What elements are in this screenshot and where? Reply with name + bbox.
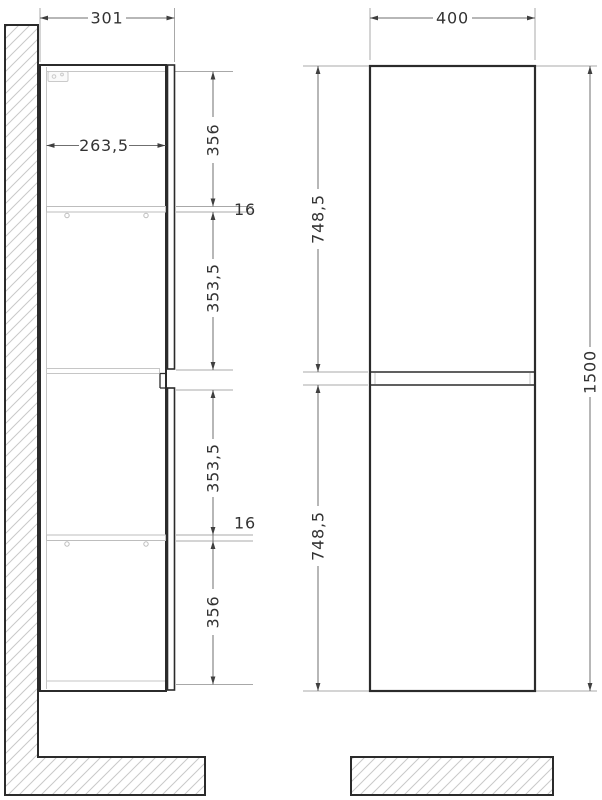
technical-drawing-page: 301 263,5 356 16 353,5 — [0, 0, 602, 800]
dim-shelf-lower-label: 16 — [234, 514, 256, 533]
dim-top-section-label: 356 — [204, 124, 223, 157]
dim-front-width: 400 — [370, 9, 535, 28]
dim-total-height-label: 1500 — [581, 350, 600, 394]
dim-mid-lower-label: 353,5 — [204, 443, 223, 493]
dim-side-depth: 301 — [40, 9, 175, 28]
dim-door-heights: 748,5 748,5 — [309, 66, 328, 691]
hinge-detail — [48, 72, 68, 82]
dim-lower-door-label: 748,5 — [309, 511, 328, 561]
cabinet-side-carcass — [40, 65, 166, 691]
dim-bottom-section-label: 356 — [204, 596, 223, 629]
dim-mid-upper-label: 353,5 — [204, 263, 223, 313]
front-view: 400 748,5 748,5 1500 — [303, 8, 600, 795]
shelf-pin — [65, 213, 69, 217]
dim-upper-door-label: 748,5 — [309, 194, 328, 244]
shelf-pin — [144, 542, 148, 546]
dim-side-depth-label: 301 — [91, 9, 124, 28]
dim-front-width-label: 400 — [436, 9, 469, 28]
dim-shelf-upper-label: 16 — [234, 200, 256, 219]
shelf-pin — [144, 213, 148, 217]
lower-door-edge — [168, 388, 175, 690]
dim-interior-depth-label: 263,5 — [79, 136, 129, 155]
upper-door-edge — [168, 65, 175, 369]
dim-total-height: 1500 — [581, 66, 600, 691]
dim-side-vertical-chain: 356 16 353,5 353,5 16 356 — [204, 72, 256, 685]
cabinet-technical-drawing: 301 263,5 356 16 353,5 — [0, 0, 602, 800]
side-view: 301 263,5 356 16 353,5 — [5, 8, 256, 795]
shelf-pin — [65, 542, 69, 546]
cabinet-front-body — [370, 66, 535, 691]
floor-section — [351, 757, 553, 795]
